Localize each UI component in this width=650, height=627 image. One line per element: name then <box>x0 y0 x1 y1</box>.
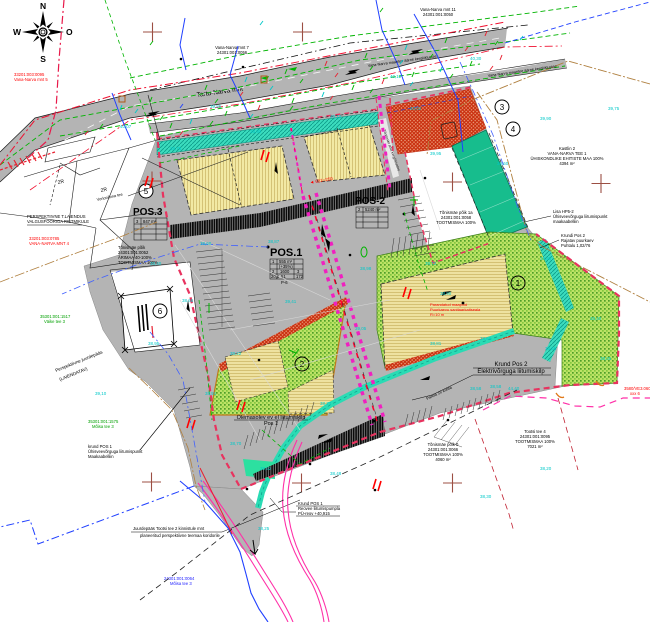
svg-text:TOOTMISMAA 100%: TOOTMISMAA 100% <box>436 220 476 225</box>
svg-text:38,95: 38,95 <box>148 341 160 346</box>
svg-text:38,87: 38,87 <box>268 239 280 244</box>
svg-text:38,60: 38,60 <box>200 241 212 246</box>
svg-text:24301:001:0050: 24301:001:0050 <box>423 12 454 17</box>
svg-text:39,41: 39,41 <box>285 299 297 304</box>
svg-text:POS.1: POS.1 <box>270 247 302 259</box>
svg-text:39,95: 39,95 <box>430 151 442 156</box>
svg-text:38,48: 38,48 <box>330 471 342 476</box>
svg-text:maakaabelliin: maakaabelliin <box>553 219 579 224</box>
svg-text:Maakaabelliin: Maakaabelliin <box>88 454 114 459</box>
svg-text:Puhtalu 1,02/76: Puhtalu 1,02/76 <box>561 243 591 248</box>
svg-text:39,10: 39,10 <box>330 114 342 119</box>
svg-text:38,40: 38,40 <box>150 261 162 266</box>
svg-text:1: 1 <box>516 279 521 288</box>
svg-text:N: N <box>40 1 46 11</box>
svg-text:38,77: 38,77 <box>320 401 332 406</box>
svg-text:44,40: 44,40 <box>508 386 520 391</box>
svg-text:3: 3 <box>500 103 505 112</box>
svg-text:4: 4 <box>511 125 516 134</box>
svg-text:40,07: 40,07 <box>120 124 132 129</box>
svg-text:40,12: 40,12 <box>390 74 402 79</box>
svg-text:5240 m²: 5240 m² <box>365 207 381 212</box>
svg-text:4060 m²: 4060 m² <box>435 457 451 462</box>
svg-text:7021 m²: 7021 m² <box>527 444 543 449</box>
svg-text:38,72: 38,72 <box>425 261 437 266</box>
svg-text:W: W <box>13 27 22 37</box>
svg-text:39,85: 39,85 <box>210 104 222 109</box>
svg-text:38,58: 38,58 <box>490 384 502 389</box>
svg-text:Mõisa tee 3: Mõisa tee 3 <box>92 424 114 429</box>
svg-text:38,35: 38,35 <box>600 356 612 361</box>
svg-text:38,58: 38,58 <box>470 386 482 391</box>
svg-text:40,30: 40,30 <box>470 56 482 61</box>
svg-text:38,40: 38,40 <box>590 316 602 321</box>
svg-text:4394 m²: 4394 m² <box>559 161 575 166</box>
svg-text:xxx 6: xxx 6 <box>630 391 640 396</box>
svg-text:Mõisa tee 3: Mõisa tee 3 <box>170 581 192 586</box>
svg-text:Pos 1: Pos 1 <box>264 421 278 427</box>
svg-text:VANA-NARVA MNT 4: VANA-NARVA MNT 4 <box>29 241 70 246</box>
svg-text:Krund Pos 2: Krund Pos 2 <box>494 362 528 368</box>
svg-text:38,55: 38,55 <box>545 346 557 351</box>
svg-text:38,30: 38,30 <box>480 494 492 499</box>
svg-text:38,70: 38,70 <box>230 441 242 446</box>
svg-text:Elektrivõrguga liitumiskilp: Elektrivõrguga liitumiskilp <box>477 369 545 375</box>
svg-text:Väike tee 3: Väike tee 3 <box>44 319 66 324</box>
svg-text:P-6: P-6 <box>281 280 288 285</box>
svg-text:39,22: 39,22 <box>230 351 242 356</box>
svg-text:planeeritud perspektiivne teem: planeeritud perspektiivne teemaa koridor… <box>140 533 221 538</box>
svg-text:6: 6 <box>158 307 163 316</box>
svg-text:38,52: 38,52 <box>260 466 272 471</box>
svg-text:24301:001:0056: 24301:001:0056 <box>217 50 248 55</box>
svg-text:39,75: 39,75 <box>608 106 620 111</box>
svg-text:Vana-Narva mnt 5: Vana-Narva mnt 5 <box>14 77 48 82</box>
svg-text:VALGUSFOORIGA RISTMIKULE: VALGUSFOORIGA RISTMIKULE <box>27 219 89 224</box>
svg-text:38,90: 38,90 <box>440 291 452 296</box>
svg-text:38,66: 38,66 <box>480 336 492 341</box>
svg-text:38,75: 38,75 <box>170 146 182 151</box>
svg-text:38,91: 38,91 <box>205 391 217 396</box>
svg-text:38,66: 38,66 <box>182 298 194 303</box>
svg-text:172: 172 <box>296 274 304 279</box>
svg-text:R=10 m: R=10 m <box>430 312 445 317</box>
svg-text:39,05: 39,05 <box>355 326 367 331</box>
svg-text:PÜ-reov +40,915: PÜ-reov +40,915 <box>298 511 330 516</box>
svg-text:38,98: 38,98 <box>360 266 372 271</box>
svg-text:39,60: 39,60 <box>497 161 509 166</box>
svg-text:38,81: 38,81 <box>430 341 442 346</box>
svg-text:51: 51 <box>281 274 286 279</box>
svg-text:38,90: 38,90 <box>250 129 262 134</box>
svg-text:Juurdepääs Tootsi tee 2 kinnis: Juurdepääs Tootsi tee 2 kinnistule mnt <box>133 526 205 531</box>
svg-text:39,10: 39,10 <box>95 391 107 396</box>
svg-text:POS-2: POS-2 <box>355 196 385 207</box>
svg-text:38,20: 38,20 <box>540 466 552 471</box>
svg-text:S: S <box>40 54 46 64</box>
svg-text:O: O <box>66 27 73 37</box>
svg-text:38,25: 38,25 <box>258 526 270 531</box>
svg-text:39,90: 39,90 <box>540 116 552 121</box>
svg-text:40,02: 40,02 <box>410 106 422 111</box>
svg-text:39,28: 39,28 <box>540 256 552 261</box>
